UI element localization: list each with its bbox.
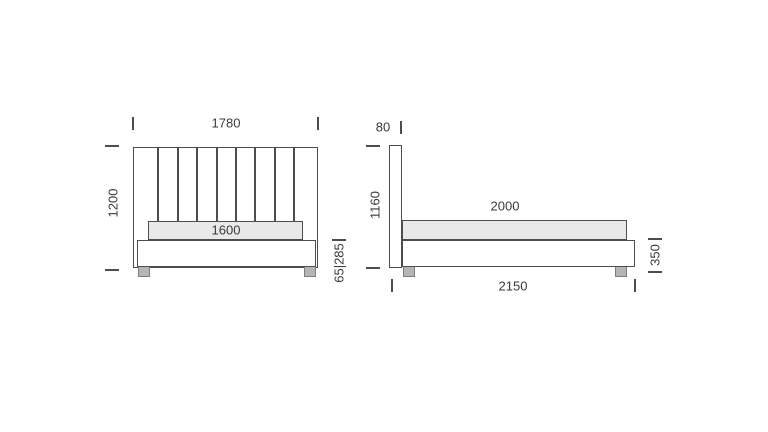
- dimension-tick: [400, 121, 402, 134]
- dimension-tick: [105, 145, 119, 147]
- side-base: [402, 240, 635, 267]
- side-mattress: [402, 220, 627, 240]
- dim-side-overall-length: 2150: [499, 280, 528, 293]
- front-base: [137, 240, 316, 267]
- dim-side-headboard-thickness: 80: [376, 121, 390, 134]
- dim-side-height: 1160: [369, 191, 382, 219]
- dimension-tick: [391, 279, 393, 292]
- bed-technical-drawing: 1780 1200 1600 65|285 80 1160 2000: [0, 0, 768, 432]
- dimension-tick: [132, 117, 134, 130]
- dimension-tick: [105, 269, 119, 271]
- dimension-tick: [648, 271, 662, 273]
- dim-side-base-height: 350: [649, 244, 662, 266]
- dim-front-height: 1200: [107, 189, 120, 218]
- dim-front-base-height: 65|285: [333, 243, 346, 283]
- dimension-tick: [648, 238, 662, 240]
- dimension-tick: [366, 145, 380, 147]
- dim-front-width: 1780: [212, 117, 241, 130]
- dimension-tick: [317, 117, 319, 130]
- dimension-tick: [332, 239, 346, 241]
- dimension-tick: [366, 267, 380, 269]
- dim-front-mattress-width: 1600: [212, 224, 241, 237]
- dimension-tick: [634, 279, 636, 292]
- dim-side-mattress-length: 2000: [491, 200, 520, 213]
- side-headboard: [389, 145, 402, 268]
